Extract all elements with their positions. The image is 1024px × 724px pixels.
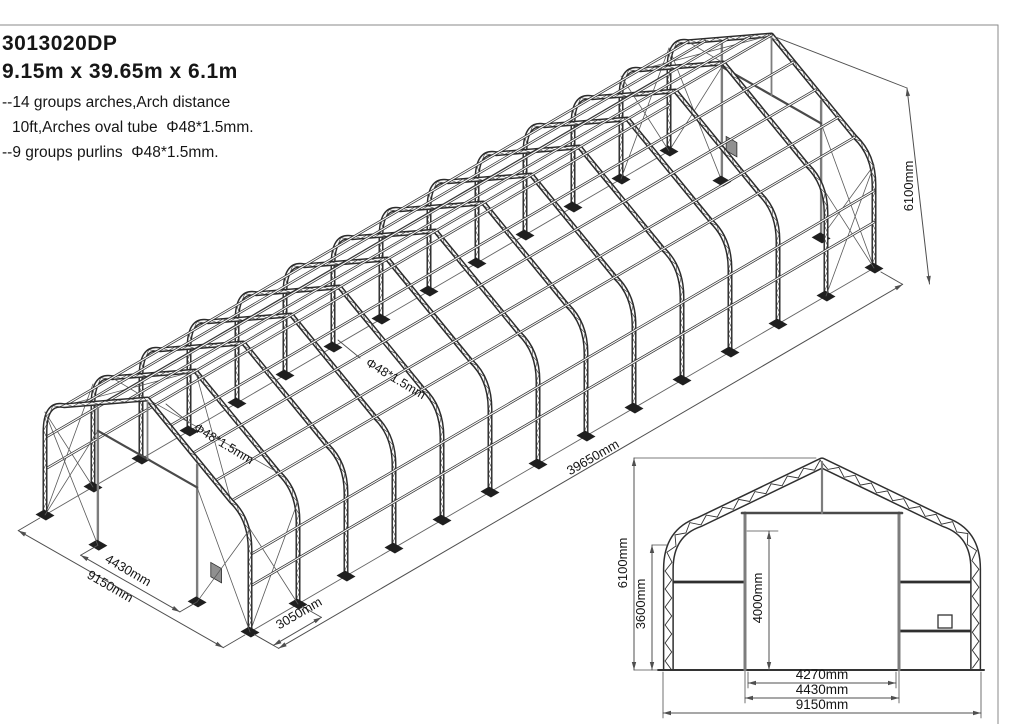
note-arches-line2: 10ft,Arches oval tube Φ48*1.5mm. xyxy=(12,119,254,137)
cs-dim-label-door-height: 4000mm xyxy=(750,573,765,624)
arch-frame-core xyxy=(189,315,394,548)
arch-frame xyxy=(333,231,538,464)
cross-brace xyxy=(197,487,250,632)
dim-arrow xyxy=(313,617,321,623)
ext-line xyxy=(881,272,903,284)
arch-frame-core xyxy=(237,287,442,520)
dim-arrow xyxy=(973,711,981,715)
leader-line xyxy=(166,404,188,422)
tube-spec-label-a: Φ48*1.5mm xyxy=(191,421,256,467)
cross-brace xyxy=(45,412,98,545)
wall-rail-core xyxy=(250,191,874,555)
dim-arrow xyxy=(906,88,910,96)
model-number: 3013020DP xyxy=(2,32,117,56)
cs-dim-label-door-clear: 4270mm xyxy=(796,667,849,682)
ext-line xyxy=(257,636,279,648)
cs-dim-label-eave: 3600mm xyxy=(633,579,648,630)
dim-arrow xyxy=(273,639,281,645)
dim-arrow xyxy=(650,662,654,670)
dim-arrow xyxy=(888,681,896,685)
arch-frame-core xyxy=(333,231,538,464)
arch-frame-core xyxy=(573,91,778,324)
note-purlins: --9 groups purlins Φ48*1.5mm. xyxy=(2,144,219,162)
dim-label-height: 6100mm xyxy=(901,161,916,212)
dim-label-length: 39650mm xyxy=(564,436,622,478)
leader-line xyxy=(338,340,360,358)
dim-arrow xyxy=(663,711,671,715)
dim-arrow xyxy=(81,555,89,561)
arch-frame xyxy=(477,147,682,380)
arch-frame-core xyxy=(525,119,730,352)
drawing-page: 9150mm4430mm3050mm39650mm6100mmΦ48*1.5mm… xyxy=(0,0,1024,724)
dim-arrow xyxy=(215,642,223,648)
arch-frame xyxy=(573,91,778,324)
arch-frame xyxy=(429,175,634,408)
dim-arrow xyxy=(891,696,899,700)
wall-rail-core xyxy=(250,222,874,586)
ext-line xyxy=(180,602,197,612)
arch-frame-core xyxy=(429,175,634,408)
arch-frame xyxy=(237,287,442,520)
arch-frame-core xyxy=(477,147,682,380)
cross-brace xyxy=(197,529,250,602)
arch-frame xyxy=(525,119,730,352)
cs-dim-label-door-width: 4430mm xyxy=(796,682,849,697)
dim-arrow xyxy=(632,458,636,466)
arch-frame xyxy=(381,203,586,436)
dim-arrow xyxy=(895,284,903,290)
dim-arrow xyxy=(767,662,771,670)
purlin-core xyxy=(192,90,816,454)
cross-section-view xyxy=(658,460,984,670)
cross-brace xyxy=(826,165,874,296)
dim-arrow xyxy=(926,276,930,284)
purlin-core xyxy=(126,37,750,401)
note-arches-line1: --14 groups arches,Arch distance xyxy=(2,94,230,112)
door-panel-box xyxy=(211,562,222,582)
dim-arrow xyxy=(18,531,26,537)
overall-size: 9.15m x 39.65m x 6.1m xyxy=(2,60,238,84)
dim-arrow xyxy=(172,606,180,612)
cs-dim-label-height: 6100mm xyxy=(615,538,630,589)
dim-arrow xyxy=(745,696,753,700)
ext-line xyxy=(18,518,40,531)
ext-line xyxy=(81,545,98,555)
arch-frame-core xyxy=(381,203,586,436)
dim-arrow xyxy=(748,681,756,685)
dim-arrow xyxy=(767,531,771,539)
cs-panel-box xyxy=(938,615,952,628)
arch-frame xyxy=(189,315,394,548)
dim-arrow xyxy=(632,662,636,670)
dim-arrow xyxy=(650,545,654,553)
cs-dim-label-width: 9150mm xyxy=(796,697,849,712)
ext-line xyxy=(223,635,245,648)
